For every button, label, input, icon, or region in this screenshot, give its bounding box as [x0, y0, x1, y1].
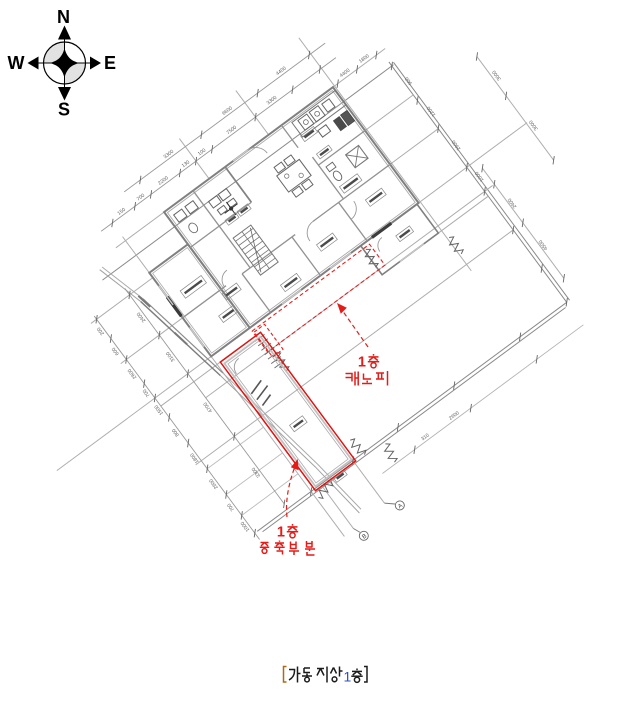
svg-text:S: S [58, 100, 70, 120]
svg-text:1: 1 [277, 525, 285, 541]
svg-text:W: W [8, 53, 25, 73]
svg-text:1: 1 [344, 669, 352, 685]
svg-text:E: E [104, 53, 116, 73]
svg-text:1: 1 [358, 355, 366, 371]
svg-text:N: N [57, 7, 70, 27]
